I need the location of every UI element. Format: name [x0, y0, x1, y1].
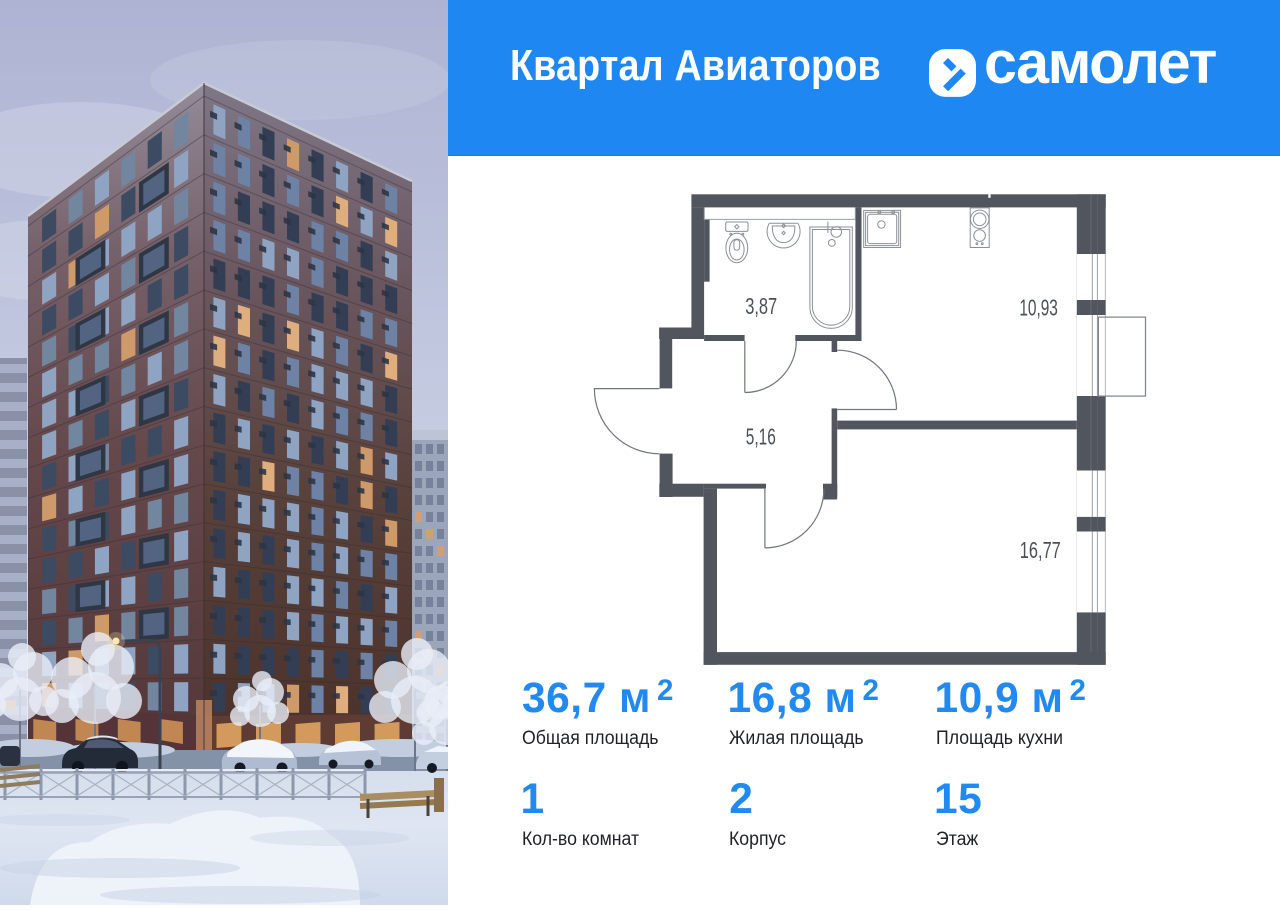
svg-text:10,93: 10,93	[1019, 294, 1058, 320]
svg-text:3,87: 3,87	[745, 293, 777, 319]
svg-text:16,77: 16,77	[1020, 537, 1061, 563]
svg-text:5,16: 5,16	[746, 423, 776, 449]
